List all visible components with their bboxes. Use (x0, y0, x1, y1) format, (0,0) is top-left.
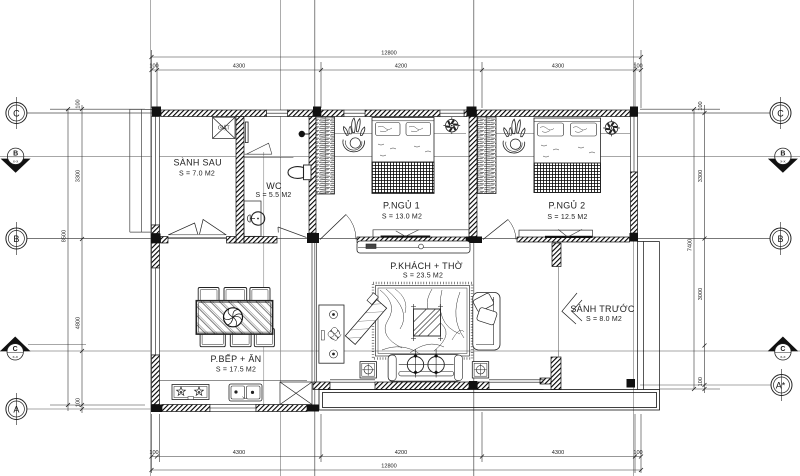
svg-text:SÀNH TRƯỚC: SÀNH TRƯỚC (570, 304, 634, 314)
svg-text:100: 100 (76, 398, 82, 407)
svg-text:100: 100 (633, 64, 642, 70)
svg-text:100: 100 (149, 450, 158, 456)
svg-text:P.NGỦ 1: P.NGỦ 1 (383, 200, 420, 211)
svg-text:P.NGỦ 2: P.NGỦ 2 (549, 200, 586, 211)
svg-text:4300: 4300 (552, 450, 564, 456)
svg-text:S = 7.0 M2: S = 7.0 M2 (179, 171, 215, 178)
svg-text:4300: 4300 (233, 450, 245, 456)
svg-text:GIẶT: GIẶT (218, 125, 230, 132)
svg-text:3300: 3300 (698, 170, 704, 182)
svg-text:P.KHÁCH + THỜ: P.KHÁCH + THỜ (390, 261, 463, 271)
svg-text:S = 13.0 M2: S = 13.0 M2 (382, 214, 422, 221)
svg-text:A: A (13, 405, 19, 415)
svg-text:4300: 4300 (552, 64, 564, 70)
svg-text:C: C (13, 109, 20, 119)
svg-text:x-x: x-x (13, 159, 18, 164)
svg-text:4800: 4800 (76, 317, 82, 329)
svg-text:B: B (13, 151, 18, 158)
svg-text:12800: 12800 (381, 464, 397, 470)
svg-text:100: 100 (633, 450, 642, 456)
svg-text:100: 100 (76, 99, 82, 108)
svg-text:C: C (777, 109, 784, 119)
svg-text:4200: 4200 (395, 450, 407, 456)
svg-text:x-x: x-x (13, 354, 18, 359)
svg-text:B: B (13, 234, 19, 244)
svg-text:C: C (13, 346, 18, 353)
svg-text:7400: 7400 (688, 239, 694, 251)
svg-text:C: C (780, 346, 785, 353)
svg-text:8500: 8500 (62, 230, 68, 242)
svg-text:100: 100 (149, 64, 158, 70)
svg-text:x-x: x-x (780, 159, 785, 164)
svg-text:S = 23.5 M2: S = 23.5 M2 (403, 272, 443, 279)
svg-text:S = 8.0 M2: S = 8.0 M2 (586, 316, 622, 323)
svg-text:3000: 3000 (698, 288, 704, 300)
svg-text:SÀNH SAU: SÀNH SAU (173, 158, 221, 168)
svg-text:4200: 4200 (395, 64, 407, 70)
svg-text:S = 12.5 M2: S = 12.5 M2 (547, 214, 587, 221)
svg-text:B: B (777, 234, 783, 244)
svg-text:4300: 4300 (233, 64, 245, 70)
svg-text:3300: 3300 (76, 170, 82, 182)
svg-text:100: 100 (698, 101, 704, 110)
svg-text:x-x: x-x (780, 354, 785, 359)
svg-text:P.BẾP + ĂN: P.BẾP + ĂN (211, 354, 262, 364)
svg-text:100: 100 (698, 377, 704, 386)
svg-text:WC: WC (266, 181, 282, 191)
svg-text:12800: 12800 (381, 51, 397, 57)
svg-text:A*: A* (776, 381, 786, 391)
svg-text:S = 17.5 M2: S = 17.5 M2 (216, 367, 256, 374)
svg-text:B: B (780, 151, 785, 158)
svg-text:S = 5.5 M2: S = 5.5 M2 (255, 192, 291, 199)
